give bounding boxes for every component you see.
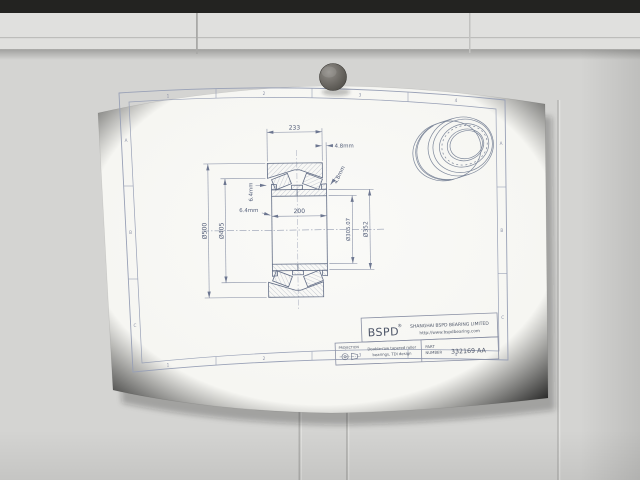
part-number-label-line1: PART [425,344,435,349]
zone-right-c: C [501,315,504,320]
door-groove-right [557,100,559,480]
pin-highlight [322,67,337,78]
projection-label: PROJECTION [339,345,360,350]
dim-overall-width: 233 [289,124,301,131]
door-groove-top-right [469,13,471,53]
dim-face-offset-left-vertical: 6.4mm [248,182,254,201]
zone-top-1: 1 [167,94,170,99]
dim-bore-diameter: Ø305.07 [345,218,352,241]
dim-outer-diameter: Ø500 [200,223,208,240]
dim-shoulder-diameter: Ø405 [217,222,225,239]
inner-ring-cones [272,189,327,196]
paper-sheet [98,86,555,425]
zone-right-b: B [500,228,503,233]
part-number-value: 332169 AA [451,347,487,355]
brand-text: BSPD [367,325,399,339]
paper [98,86,548,413]
zone-bottom-1: 1 [167,363,170,368]
center-rib [292,185,303,189]
part-number-label-line2: NUMBER [425,349,442,355]
zone-left-b: B [129,230,132,235]
zone-top-2: 2 [263,91,266,96]
dim-face-offset-left: 6.4mm [239,208,258,214]
rail-shadow [0,49,640,60]
photo-of-pinned-drawing: 1 2 3 4 1 2 3 4 A B C A B C [0,0,640,480]
dim-inner-width: 200 [294,208,306,215]
scene-svg: 1 2 3 4 1 2 3 4 A B C A B C [0,0,640,480]
zone-top-4: 4 [455,98,458,103]
door-top-rail [0,13,640,50]
zone-bottom-2: 2 [263,356,266,361]
zone-left-a: A [125,138,128,143]
zone-bottom-3: 3 [359,352,362,357]
dim-face-offset-right: 4.8mm [335,143,354,149]
door-groove-top-left [196,13,198,54]
dim-rib-diameter: Ø352 [362,221,369,237]
zone-right-a: A [500,141,503,146]
top-dark-gap [0,0,640,13]
zone-left-c: C [134,323,137,328]
zone-top-3: 3 [359,93,362,98]
